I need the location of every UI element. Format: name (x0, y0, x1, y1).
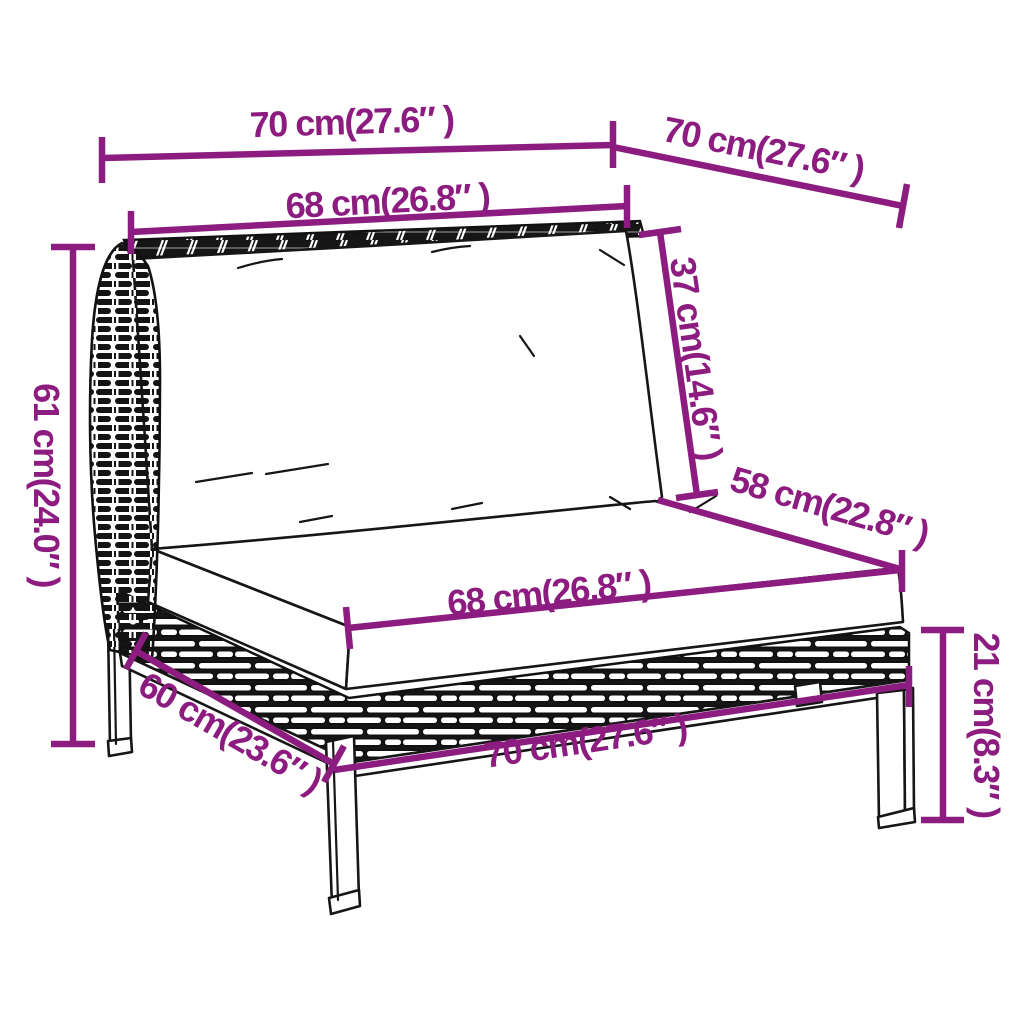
back-cushion-face (133, 231, 662, 549)
dimension-label-overall-height: 61 cm(24.0″ ) (26, 383, 67, 587)
dimension-overall-height: 61 cm(24.0″ ) (26, 247, 95, 744)
tick-cap (676, 492, 718, 498)
left-side-rattan-panel (90, 243, 160, 659)
leg-shaft (877, 690, 905, 821)
leg-foot (108, 738, 132, 756)
front-right-leg (877, 688, 915, 828)
dimension-diagram-canvas: 70 cm(27.6″ ) 70 cm(27.6″ ) 68 cm(26.8″ … (0, 0, 1024, 1024)
leg-side-face (904, 688, 914, 818)
tick-cap (346, 607, 350, 649)
dimension-side-depth: 70 cm(27.6″ ) (613, 108, 907, 228)
dimension-leg-height: 21 cm(8.3″ ) (921, 630, 1007, 820)
tick-cap (899, 184, 907, 228)
sofa-illustration (90, 221, 915, 914)
dimension-label-top-width: 70 cm(27.6″ ) (249, 98, 455, 145)
dimension-line (102, 145, 613, 158)
product-dimension-diagram: 70 cm(27.6″ ) 70 cm(27.6″ ) 68 cm(26.8″ … (0, 0, 1024, 1024)
tick-cap (639, 229, 681, 235)
dimension-label-back-cushion-height: 37 cm(14.6″ ) (662, 254, 731, 462)
dimension-top-width: 70 cm(27.6″ ) (102, 98, 613, 183)
back-cushion (133, 231, 662, 549)
dimension-label-back-cushion-width: 68 cm(26.8″ ) (284, 175, 490, 227)
dimension-label-leg-height: 21 cm(8.3″ ) (966, 632, 1007, 818)
